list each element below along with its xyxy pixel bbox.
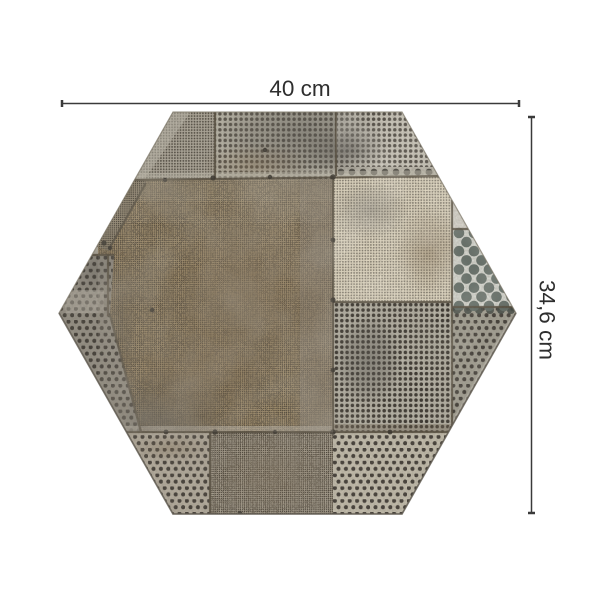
svg-text:40 cm: 40 cm: [269, 76, 330, 101]
svg-text:34,6 cm: 34,6 cm: [535, 280, 560, 360]
